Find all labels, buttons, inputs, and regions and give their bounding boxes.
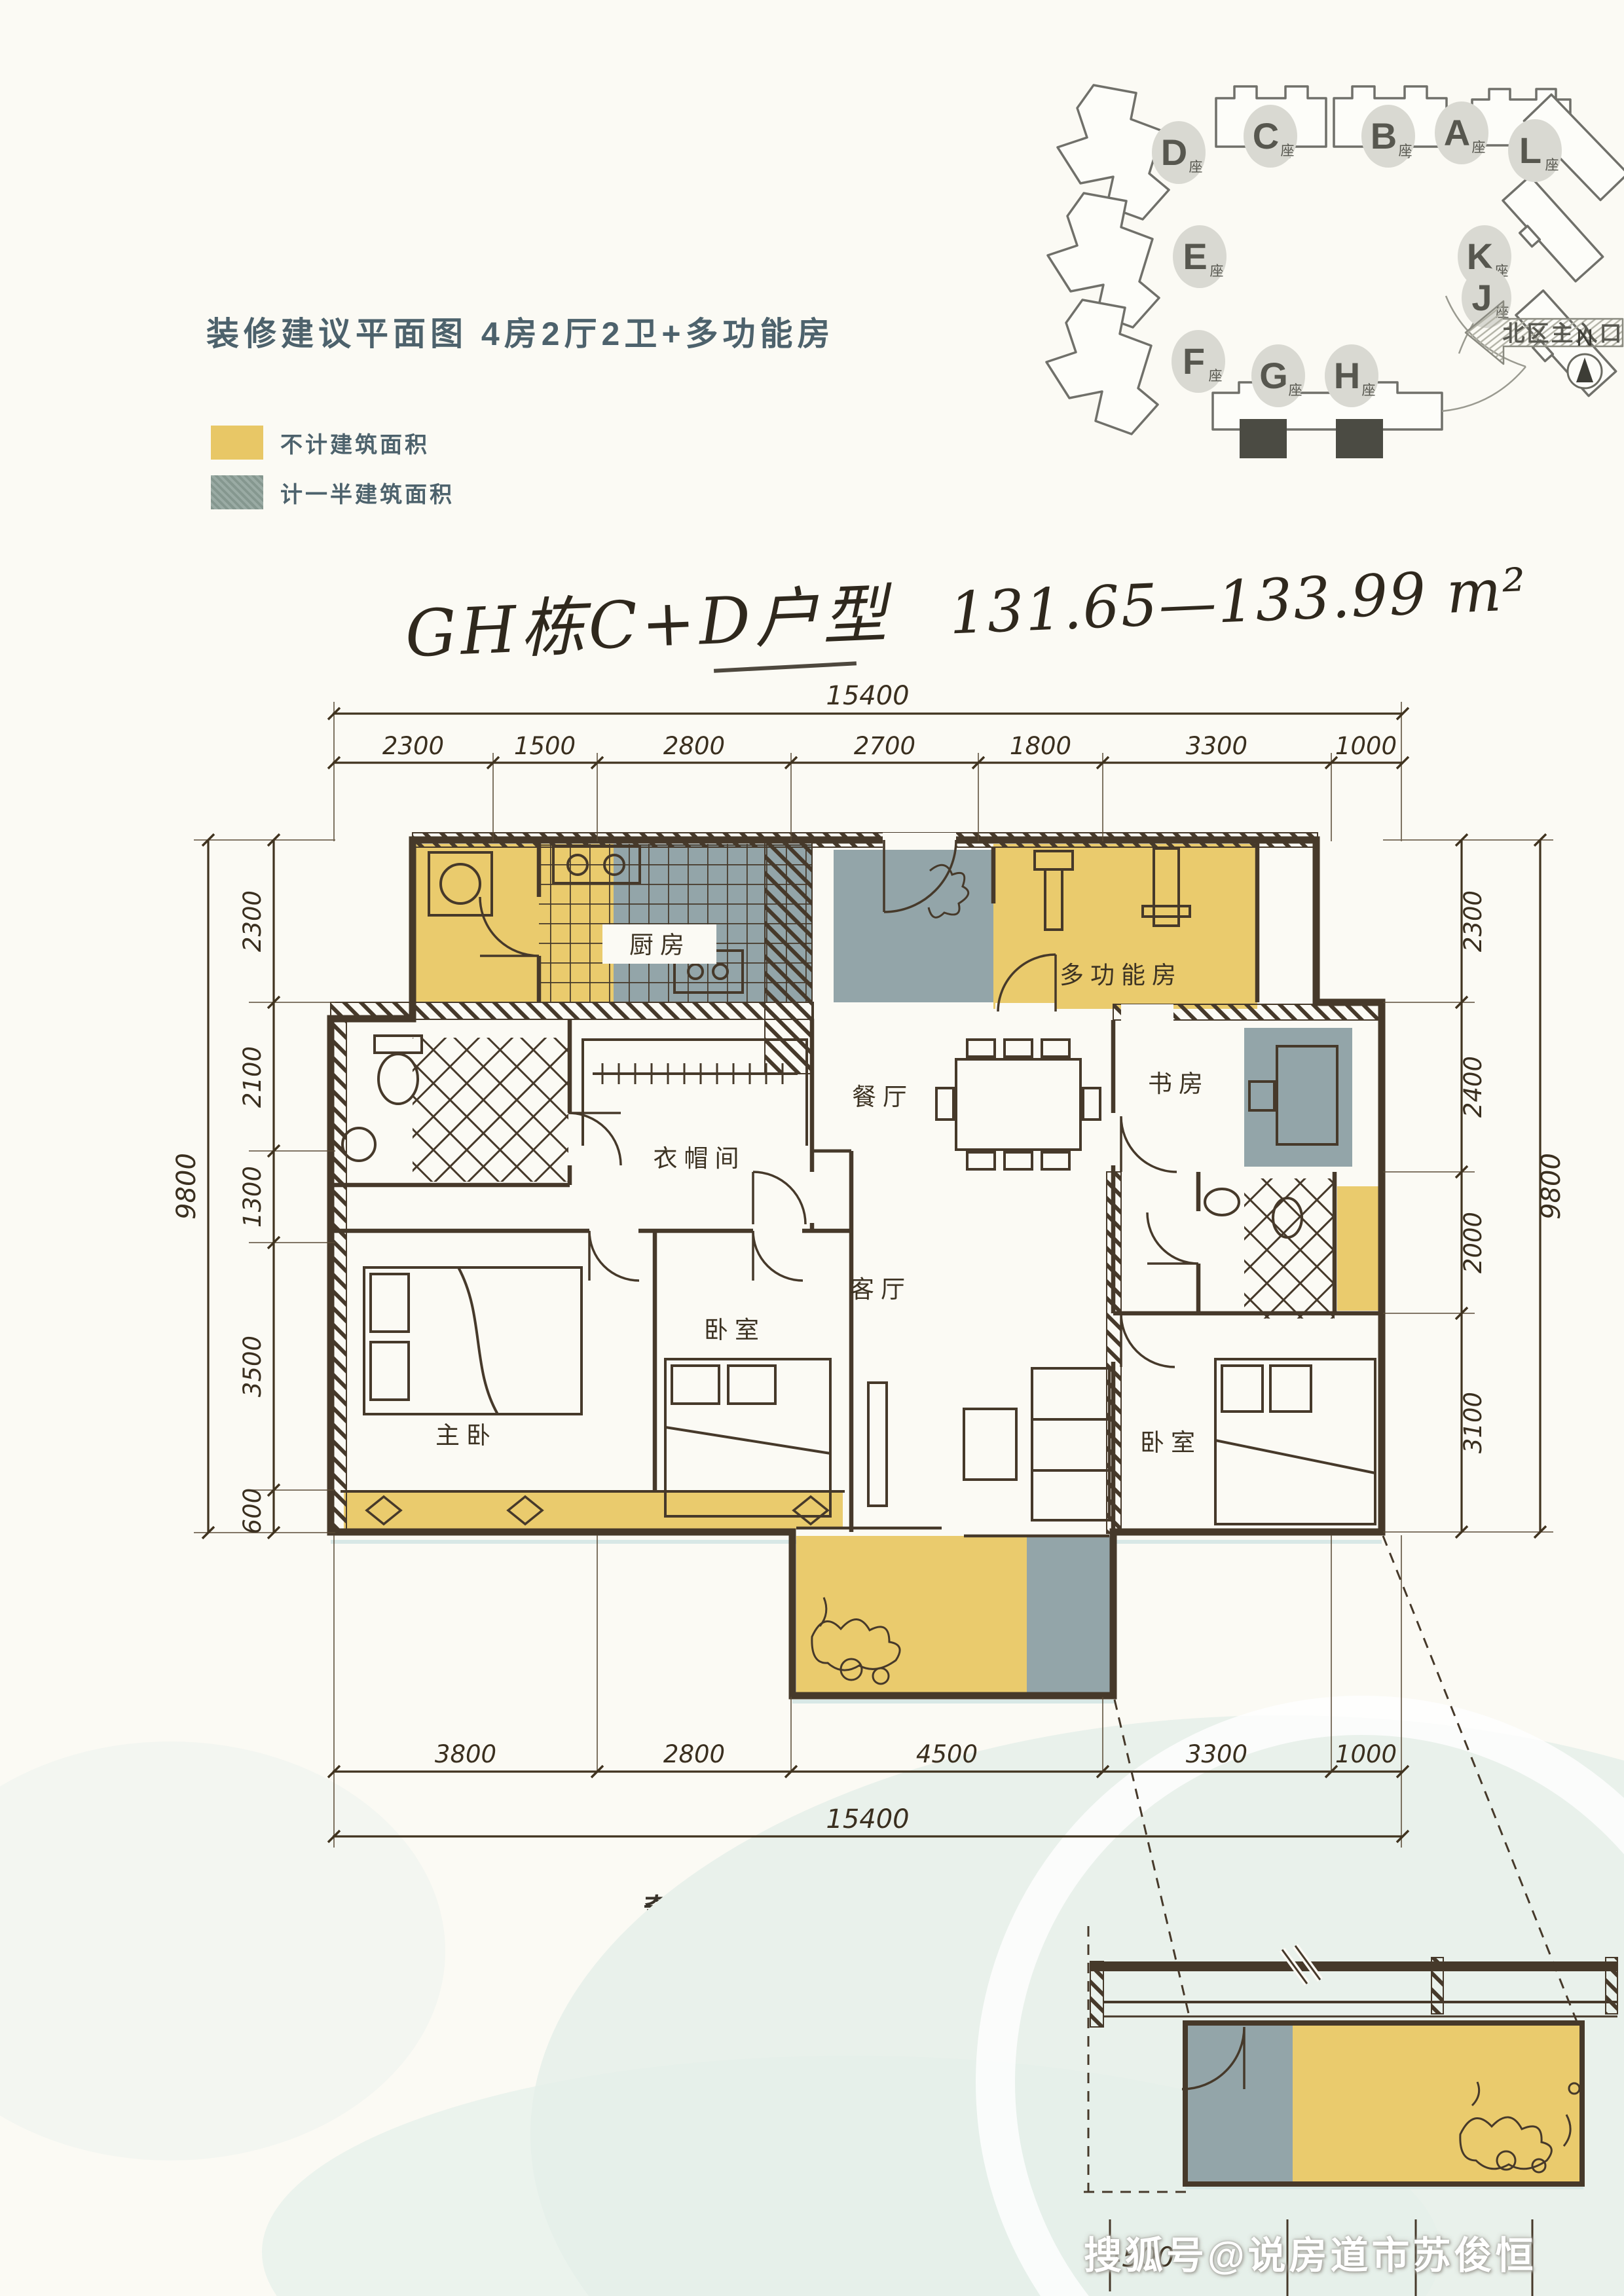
podium-block-g xyxy=(1240,419,1287,458)
room-label-kitchen: 厨房 xyxy=(629,932,691,959)
dim-right-3: 3100 xyxy=(1459,1392,1487,1453)
dim-left-total: 9800 xyxy=(172,1153,202,1220)
zone-laundry-balcony xyxy=(413,844,539,1002)
building-label-A: A 座 xyxy=(1435,101,1488,164)
dim-top-3: 2700 xyxy=(854,732,915,760)
building-label-H: H 座 xyxy=(1325,344,1378,407)
dim-right-total: 9800 xyxy=(1536,1153,1566,1220)
watermark: 搜狐号@说房道市苏俊恒 xyxy=(1084,2225,1624,2280)
floor-plan: 厨房 多功能房 餐厅 书房 衣帽间 客厅 主卧 卧室 卧室 xyxy=(331,833,1383,1696)
dim-right-0: 2300 xyxy=(1459,890,1487,952)
svg-text:座: 座 xyxy=(1399,143,1412,158)
room-label-bedroom-right: 卧室 xyxy=(1140,1429,1202,1457)
dim-left-1: 2100 xyxy=(238,1046,267,1108)
master-bed-icon xyxy=(364,1267,581,1414)
compass-n-label: N xyxy=(1576,324,1593,351)
svg-text:J: J xyxy=(1471,277,1492,318)
dim-top-2: 2800 xyxy=(663,732,725,760)
entrance-arrow-label: 北区主入口 xyxy=(1503,321,1624,346)
room-label-multi: 多功能房 xyxy=(1060,962,1183,989)
building-shape-F xyxy=(1046,300,1158,434)
dim-bottom-2: 4500 xyxy=(916,1740,978,1768)
drawing-canvas: D 座 C 座 B 座 A 座 xyxy=(0,0,1624,2296)
podium-block-h xyxy=(1336,419,1383,458)
dim-left-2: 1300 xyxy=(238,1166,267,1228)
zone-foyer-gray xyxy=(834,850,993,1002)
bath1-lattice xyxy=(413,1038,568,1182)
svg-text:F: F xyxy=(1183,340,1205,382)
dim-right-2: 2000 xyxy=(1459,1212,1487,1273)
dim-left-4: 600 xyxy=(238,1488,267,1535)
dim-bottom-3: 3300 xyxy=(1186,1740,1247,1768)
dim-top-1: 1500 xyxy=(514,732,576,760)
dim-left-0: 2300 xyxy=(238,890,267,952)
room-label-bedroom-mid: 卧室 xyxy=(704,1317,766,1344)
zone-balcony-yellow xyxy=(796,1536,1027,1693)
svg-text:座: 座 xyxy=(1281,143,1295,158)
scanned-floorplan-page: { "page": { "title": "装修建议平面图 4房2厅2卫+多功能… xyxy=(0,0,1624,2296)
building-shape-K xyxy=(1496,176,1603,287)
dim-right-1: 2400 xyxy=(1459,1056,1487,1118)
building-label-E: E 座 xyxy=(1173,225,1227,288)
dim-top-0: 2300 xyxy=(382,732,444,760)
balcony-slider xyxy=(796,1528,1109,1536)
dim-bottom-0: 3800 xyxy=(435,1740,496,1768)
svg-text:座: 座 xyxy=(1545,158,1559,173)
dim-top-5: 3300 xyxy=(1186,732,1247,760)
svg-text:座: 座 xyxy=(1472,140,1486,155)
building-label-G: G 座 xyxy=(1251,344,1305,407)
dim-bottom-1: 2800 xyxy=(663,1740,725,1768)
building-label-D: D 座 xyxy=(1152,121,1206,184)
svg-text:B: B xyxy=(1371,115,1397,156)
zone-balcony-gray xyxy=(1027,1536,1111,1693)
building-label-C: C 座 xyxy=(1244,105,1297,168)
svg-text:座: 座 xyxy=(1362,383,1376,398)
bath1-fixtures xyxy=(342,1036,422,1161)
svg-text:E: E xyxy=(1183,236,1207,277)
dim-bottom-total: 15400 xyxy=(826,1804,909,1834)
svg-text:座: 座 xyxy=(1289,383,1302,398)
building-label-L: L 座 xyxy=(1508,119,1562,182)
site-plan: D 座 C 座 B 座 A 座 xyxy=(1046,85,1624,458)
svg-text:L: L xyxy=(1519,130,1541,171)
dim-top-total: 15400 xyxy=(826,681,909,711)
sofa-set-icon xyxy=(868,1368,1109,1520)
svg-text:座: 座 xyxy=(1209,369,1223,384)
dim-top-6: 1000 xyxy=(1335,732,1397,760)
room-label-study: 书房 xyxy=(1148,1071,1209,1098)
svg-text:D: D xyxy=(1161,132,1187,173)
detail-balcony xyxy=(1182,2023,1582,2184)
svg-text:H: H xyxy=(1334,355,1360,396)
room-label-dining: 餐厅 xyxy=(852,1084,913,1111)
svg-text:A: A xyxy=(1444,112,1470,153)
building-label-B: B 座 xyxy=(1361,105,1415,168)
room-label-cloak: 衣帽间 xyxy=(654,1145,746,1173)
dim-left-3: 3500 xyxy=(238,1336,267,1397)
dim-bottom-4: 1000 xyxy=(1335,1740,1397,1768)
svg-text:座: 座 xyxy=(1210,264,1224,279)
zone-window-seat xyxy=(344,1493,843,1529)
svg-text:C: C xyxy=(1253,115,1279,156)
room-label-master: 主卧 xyxy=(435,1423,497,1449)
svg-text:G: G xyxy=(1259,355,1288,396)
svg-text:座: 座 xyxy=(1189,160,1203,175)
room-label-living: 客厅 xyxy=(850,1276,912,1303)
dining-table-icon xyxy=(936,1040,1100,1169)
dim-top-4: 1800 xyxy=(1010,732,1071,760)
building-label-F: F 座 xyxy=(1172,330,1225,393)
zone-right-strip-yellow xyxy=(1337,1186,1380,1311)
right-bed-icon xyxy=(1215,1359,1375,1524)
